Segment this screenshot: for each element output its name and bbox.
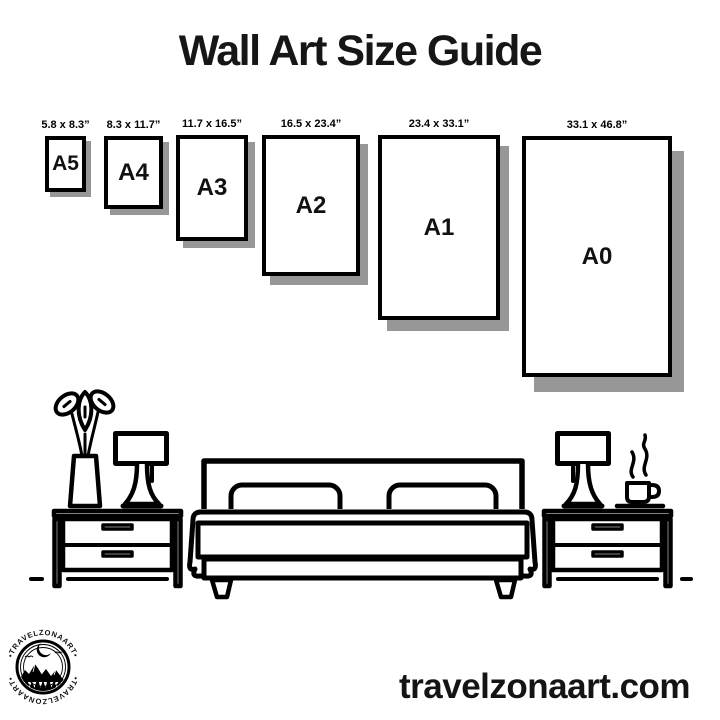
nightstand-icon-left (54, 511, 181, 586)
coffee-cup-icon (617, 435, 663, 506)
flower-vase-icon (52, 387, 118, 506)
drawer-handle (103, 525, 132, 529)
bed-leg (496, 580, 515, 597)
bedroom-illustration (0, 0, 720, 720)
website-text: travelzonaart.com (399, 667, 690, 707)
nightstand-icon-right (544, 511, 671, 586)
steam (631, 452, 634, 477)
table-lamp-icon-right (558, 434, 609, 507)
brand-badge: •TRAVELZONAART• •TRAVELZONAART• (0, 622, 89, 712)
table-lamp-icon-left (116, 434, 167, 507)
size-guide-poster: Wall Art Size Guide 5.8 x 8.3” A5 8.3 x … (0, 0, 720, 720)
double-bed-icon (190, 461, 536, 597)
steam (644, 435, 647, 475)
drawer-handle (593, 552, 622, 556)
drawer-handle (593, 525, 622, 529)
bed-leg (212, 580, 231, 597)
drawer-handle (103, 552, 132, 556)
